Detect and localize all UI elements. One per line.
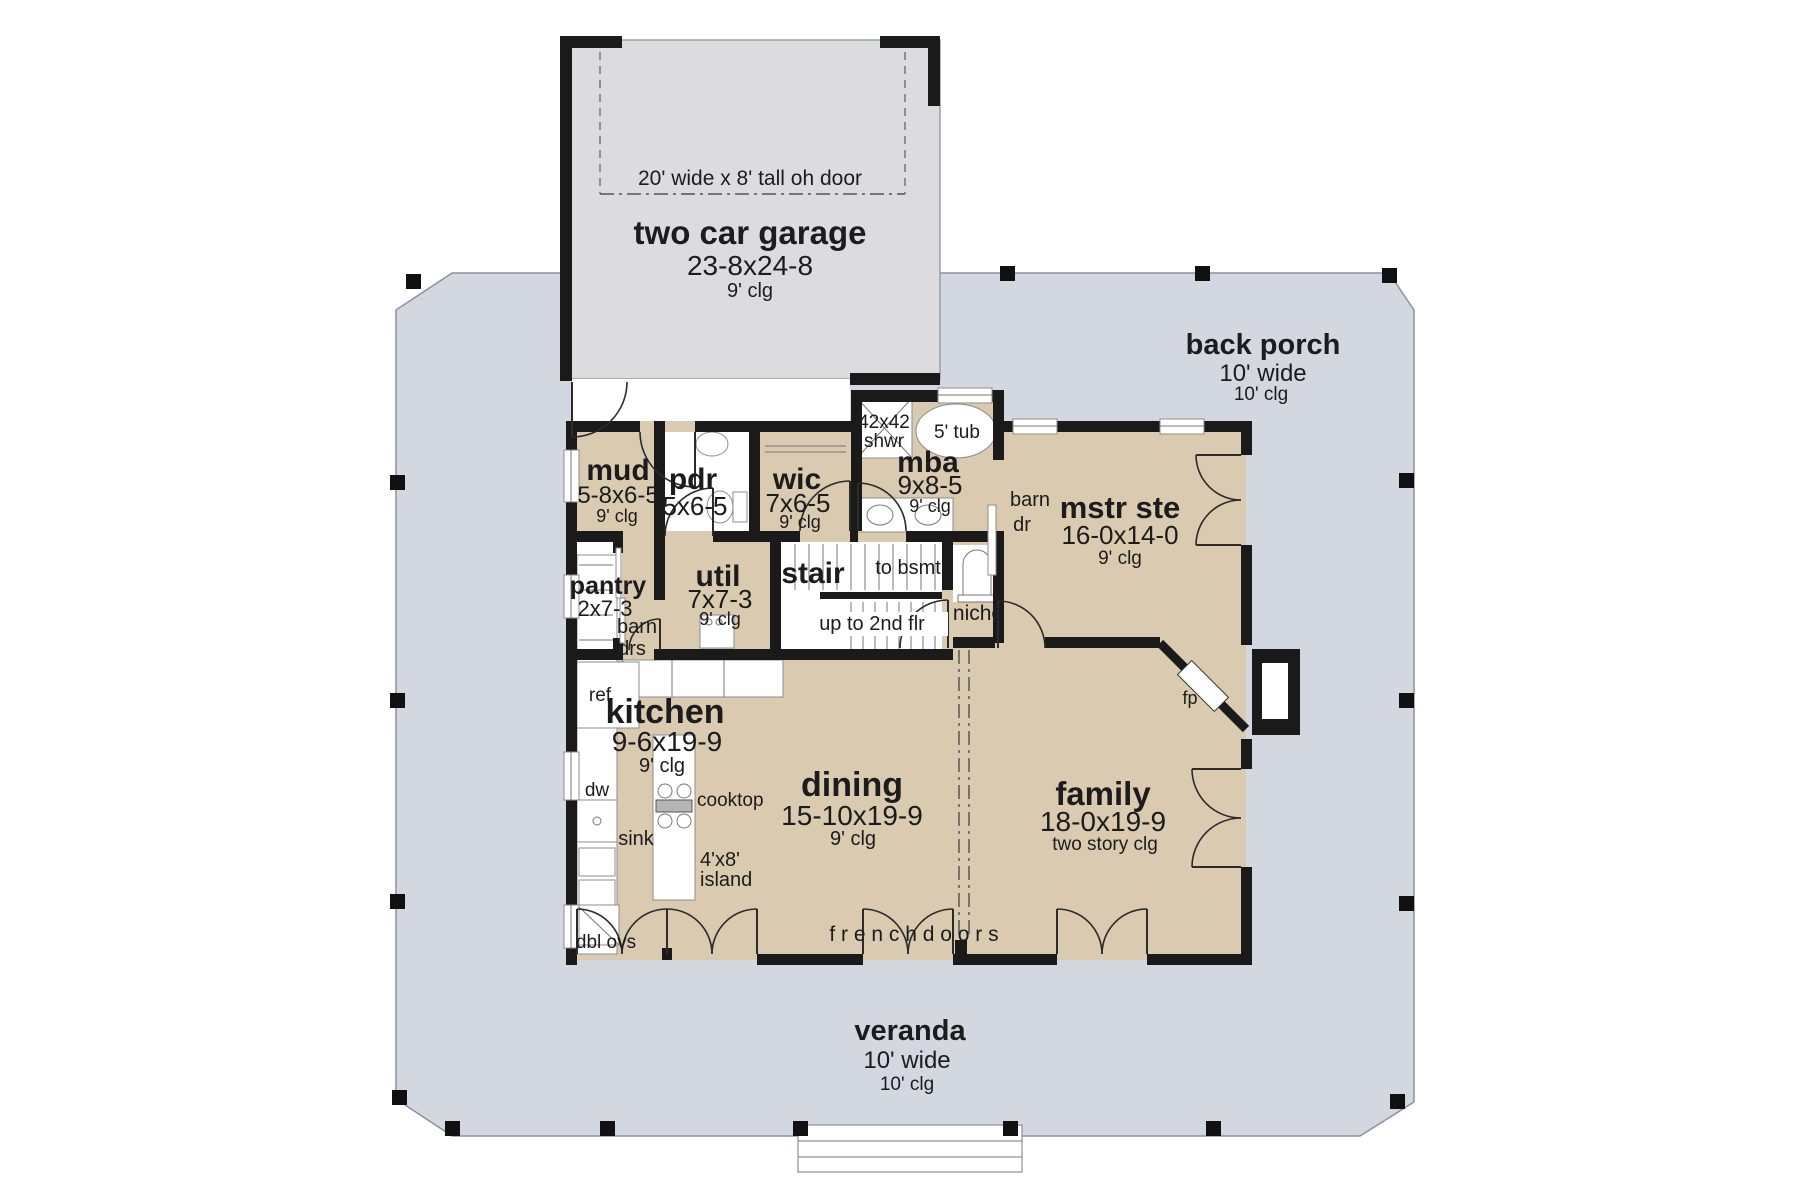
pdr-dims: 5x6-5 (662, 491, 727, 521)
mstr-dims: 16-0x14-0 (1061, 520, 1178, 550)
util-clg: 9' clg (699, 609, 740, 629)
dbl-ovs-label: dbl ovs (576, 932, 636, 953)
floor-plan-canvas: 20' wide x 8' tall oh door two car garag… (0, 0, 1800, 1200)
cooktop-label: cooktop (697, 790, 764, 811)
stair-label: stair (781, 557, 845, 590)
family-clg: two story clg (1052, 834, 1158, 855)
dishwasher-box (577, 800, 617, 842)
kitchen-dims: 9-6x19-9 (612, 726, 723, 757)
window (1013, 419, 1057, 434)
veranda-steps (798, 1125, 1022, 1172)
family-dims: 18-0x19-9 (1040, 806, 1166, 837)
dining-dims: 15-10x19-9 (781, 800, 923, 831)
barn-door-panel (988, 505, 996, 575)
pdr-sink-icon (696, 432, 728, 456)
dining-clg: 9' clg (830, 828, 876, 850)
sink-basin (579, 880, 615, 906)
french-doors-label: f r e n c h d o o r s (829, 923, 998, 946)
barn-dr-1: barn (1010, 489, 1050, 511)
dw-label: dw (585, 780, 610, 801)
mba-clg: 9' clg (909, 496, 950, 516)
to-bsmt: to bsmt (875, 557, 941, 579)
window (938, 388, 992, 403)
mud-dims: 5-8x6-5 (577, 482, 658, 509)
island-label: island (700, 869, 752, 891)
counter-top (623, 660, 783, 697)
barn-drs-1: barn (617, 616, 657, 638)
barn-dr-2: dr (1013, 514, 1031, 536)
garage-label: two car garage (634, 214, 867, 251)
sink-basin (579, 848, 615, 876)
window (564, 752, 579, 800)
sink-label: sink (618, 828, 655, 850)
ref-label: ref (589, 685, 612, 706)
garage-dims: 23-8x24-8 (687, 250, 813, 281)
mud-clg: 9' clg (596, 506, 637, 526)
garage-clg: 9' clg (727, 280, 773, 302)
floor-plan-page: 20' wide x 8' tall oh door two car garag… (0, 0, 1800, 1200)
stair-rail (820, 592, 942, 599)
dining-label: dining (801, 766, 903, 804)
back-porch-clg: 10' clg (1234, 384, 1288, 405)
window (1160, 419, 1204, 434)
island-size-label: 4'x8' (700, 849, 740, 871)
veranda-label: veranda (854, 1015, 966, 1047)
up-to-2nd: up to 2nd flr (819, 613, 925, 635)
back-porch-width: 10' wide (1219, 360, 1306, 387)
veranda-clg: 10' clg (880, 1074, 934, 1095)
shower-size: 42x42 (858, 412, 910, 433)
garage-structure (560, 36, 940, 385)
fp-label: fp (1182, 688, 1197, 708)
veranda-width: 10' wide (863, 1047, 950, 1074)
wic-clg: 9' clg (779, 512, 820, 532)
back-porch-label: back porch (1186, 329, 1341, 361)
kitchen-clg: 9' clg (639, 755, 685, 777)
niche-label: niche (953, 602, 1003, 625)
tub-label: 5' tub (934, 422, 980, 443)
garage-door-note: 20' wide x 8' tall oh door (638, 167, 862, 190)
mstr-clg: 9' clg (1098, 548, 1142, 569)
barn-drs-2: drs (618, 638, 646, 660)
